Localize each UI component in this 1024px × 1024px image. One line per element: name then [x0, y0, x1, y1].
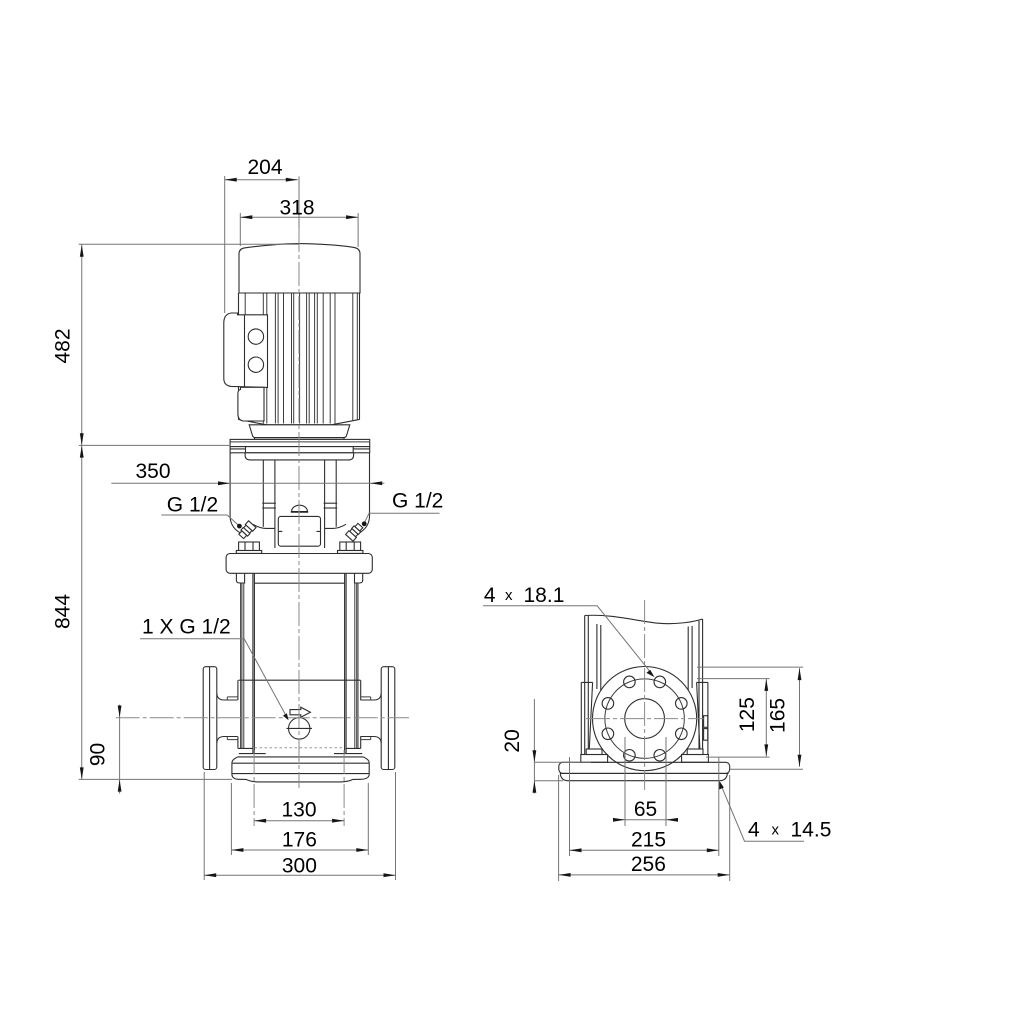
svg-text:65: 65	[634, 798, 657, 821]
svg-text:G 1/2: G 1/2	[167, 494, 218, 517]
svg-text:4: 4	[748, 819, 760, 842]
svg-text:90: 90	[86, 743, 109, 766]
svg-text:300: 300	[282, 855, 317, 878]
svg-text:14.5: 14.5	[791, 819, 832, 842]
svg-text:844: 844	[51, 594, 74, 629]
svg-text:130: 130	[281, 799, 316, 822]
svg-text:20: 20	[501, 729, 524, 752]
svg-text:125: 125	[736, 697, 759, 732]
svg-text:4: 4	[484, 584, 496, 607]
svg-text:350: 350	[135, 460, 170, 483]
svg-text:165: 165	[767, 698, 790, 733]
svg-text:1 X G 1/2: 1 X G 1/2	[142, 616, 231, 639]
svg-text:204: 204	[247, 156, 282, 179]
svg-text:x: x	[505, 587, 513, 604]
svg-text:176: 176	[282, 829, 317, 852]
svg-text:482: 482	[51, 328, 74, 363]
svg-text:215: 215	[631, 829, 666, 852]
svg-text:256: 256	[631, 853, 666, 876]
svg-text:318: 318	[279, 197, 314, 220]
svg-text:G 1/2: G 1/2	[392, 490, 443, 513]
svg-text:x: x	[772, 822, 780, 839]
svg-text:18.1: 18.1	[524, 584, 565, 607]
